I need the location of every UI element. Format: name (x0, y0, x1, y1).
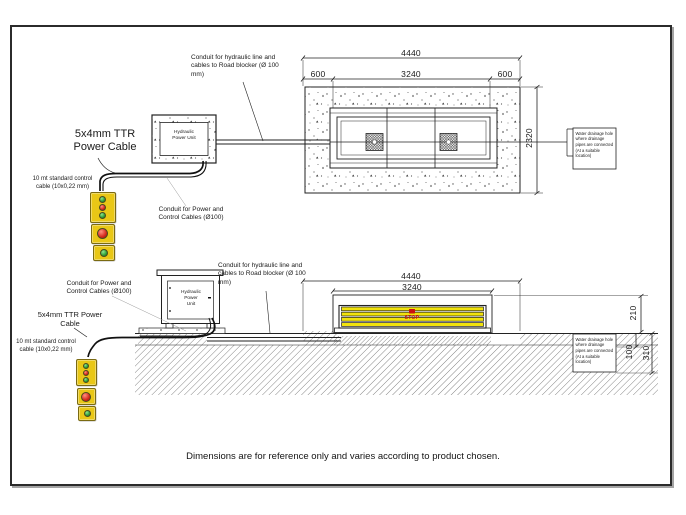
section-conduit-power-label: Conduit for Power and Control Cables (Ø1… (58, 280, 140, 297)
control-box-emergency (77, 388, 96, 405)
plan-anchor-plate-left (366, 134, 383, 151)
section-power-cable-leader (74, 328, 87, 337)
green-button-icon (99, 196, 106, 203)
plan-dim-overall: 4440 (391, 48, 431, 58)
section-control-cable-label: 10 mt standard control cable (10x0,22 mm… (10, 339, 82, 354)
plan-power-cable-label: 5x4mm TTR Power Cable (62, 128, 148, 154)
plan-dim-right-margin: 600 (491, 69, 519, 79)
control-box-three-buttons (76, 359, 97, 386)
section-dim-asphalt-depth: 100 (624, 337, 634, 367)
plan-dim-left-margin: 600 (304, 69, 332, 79)
plan-cables (100, 161, 206, 191)
plan-anchor-plate-right (440, 134, 457, 151)
plan-conduit-power-label: Conduit for Power and Control Cables (Ø1… (151, 206, 231, 223)
control-box-three-buttons (90, 192, 116, 223)
green-button-icon (84, 410, 91, 417)
section-power-cable-label: 5x4mm TTR Power Cable (33, 310, 107, 328)
plan-drainage-note-text: Water drainage hole where drainage pipes… (576, 131, 614, 159)
plan-hpu-label: Hydraulic Power Unit (172, 130, 196, 142)
green-button-icon (83, 363, 89, 369)
plan-dim-pit-width: 3240 (392, 69, 430, 79)
red-button-icon (83, 370, 89, 376)
emergency-stop-button-icon (97, 228, 108, 239)
section-view (74, 270, 658, 395)
red-button-icon (99, 204, 106, 211)
plan-control-cable-label: 10 mt standard control cable (10x0,22 mm… (25, 176, 100, 191)
green-button-icon (100, 249, 108, 257)
stop-sign-icon (409, 309, 415, 314)
section-dim-overall: 4440 (391, 271, 431, 281)
plan-dim-depth: 2320 (524, 121, 534, 155)
section-dim-blocker-width: 3240 (392, 282, 432, 292)
section-dim-raise-height: 210 (628, 298, 638, 328)
control-box-single (93, 245, 115, 261)
section-conduit-hydraulic-label: Conduit for hydraulic line and cables to… (218, 262, 315, 287)
plan-conduit-hydraulic-label: Conduit for hydraulic line and cables to… (191, 54, 288, 79)
plan-hydraulic-leader-line (243, 82, 263, 141)
plan-power-cable-leader (98, 158, 115, 173)
control-box-emergency (91, 224, 115, 244)
emergency-stop-button-icon (81, 392, 91, 402)
section-hpu-label: Hydraulic Power Unit (180, 290, 202, 308)
green-button-icon (99, 212, 106, 219)
control-box-single (78, 406, 96, 421)
footer-note: Dimensions are for reference only and va… (0, 451, 686, 462)
section-hydraulic-leader-line (266, 291, 270, 333)
section-drainage-note-text: Water drainage hole where drainage pipes… (576, 337, 614, 365)
stop-label: STOP (397, 315, 427, 321)
section-dim-pit-depth: 310 (641, 338, 651, 368)
green-button-icon (83, 377, 89, 383)
plan-power-leader-line (167, 178, 186, 206)
drawing-page: Conduit for hydraulic line and cables to… (0, 0, 686, 515)
section-pit-bed-hatch (334, 336, 491, 345)
